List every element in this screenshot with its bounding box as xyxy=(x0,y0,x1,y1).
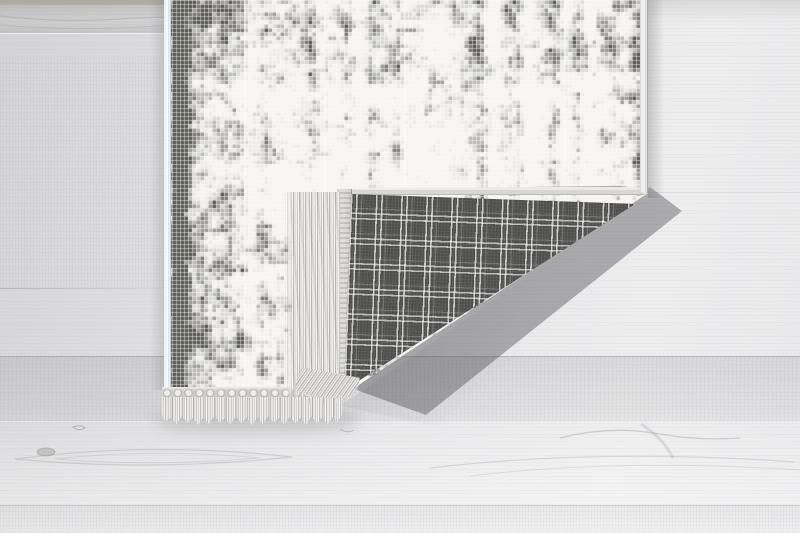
grain-arc xyxy=(470,465,800,476)
grain-mark xyxy=(340,429,354,432)
grain-arc xyxy=(55,453,260,463)
rug-product-photo xyxy=(0,0,800,533)
rug-left-shadow xyxy=(150,0,164,390)
rug-left-binding xyxy=(164,0,171,389)
rug-right-shadow xyxy=(648,0,664,198)
fringe-strands xyxy=(162,397,342,427)
wood-knot xyxy=(37,448,55,456)
grain-streak xyxy=(641,424,673,458)
grain-mark xyxy=(73,426,85,430)
rug-right-binding xyxy=(640,0,648,196)
grain-wisp xyxy=(114,225,124,345)
